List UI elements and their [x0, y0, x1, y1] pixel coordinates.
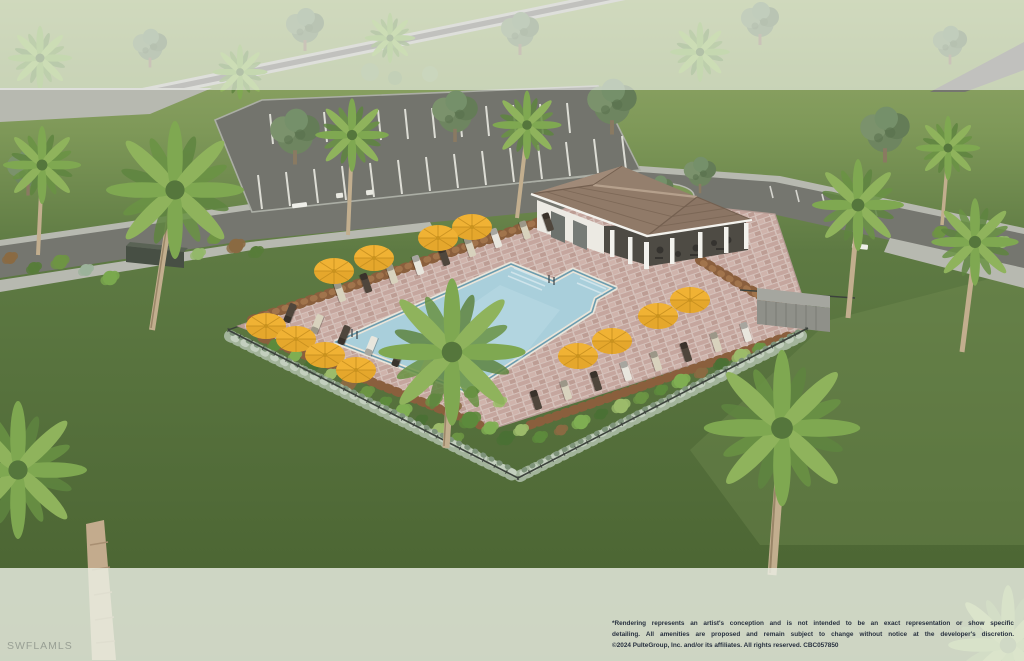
handicap-marking — [366, 190, 373, 196]
handicap-marking — [336, 193, 343, 199]
disclaimer-text: *Rendering represents an artist's concep… — [612, 619, 1014, 652]
disclaimer-line: *Rendering represents an artist's concep… — [612, 619, 1014, 630]
rendering-scene — [0, 0, 1024, 661]
faded-top-strip — [0, 0, 1024, 90]
disclaimer-line: detailing. All amenities are proposed an… — [612, 630, 1014, 641]
disclaimer-line: ©2024 PulteGroup, Inc. and/or its affili… — [612, 641, 1014, 652]
mls-watermark: SWFLAMLS — [7, 640, 73, 652]
listing-photo-rendering: SWFLAMLS *Rendering represents an artist… — [0, 0, 1024, 661]
